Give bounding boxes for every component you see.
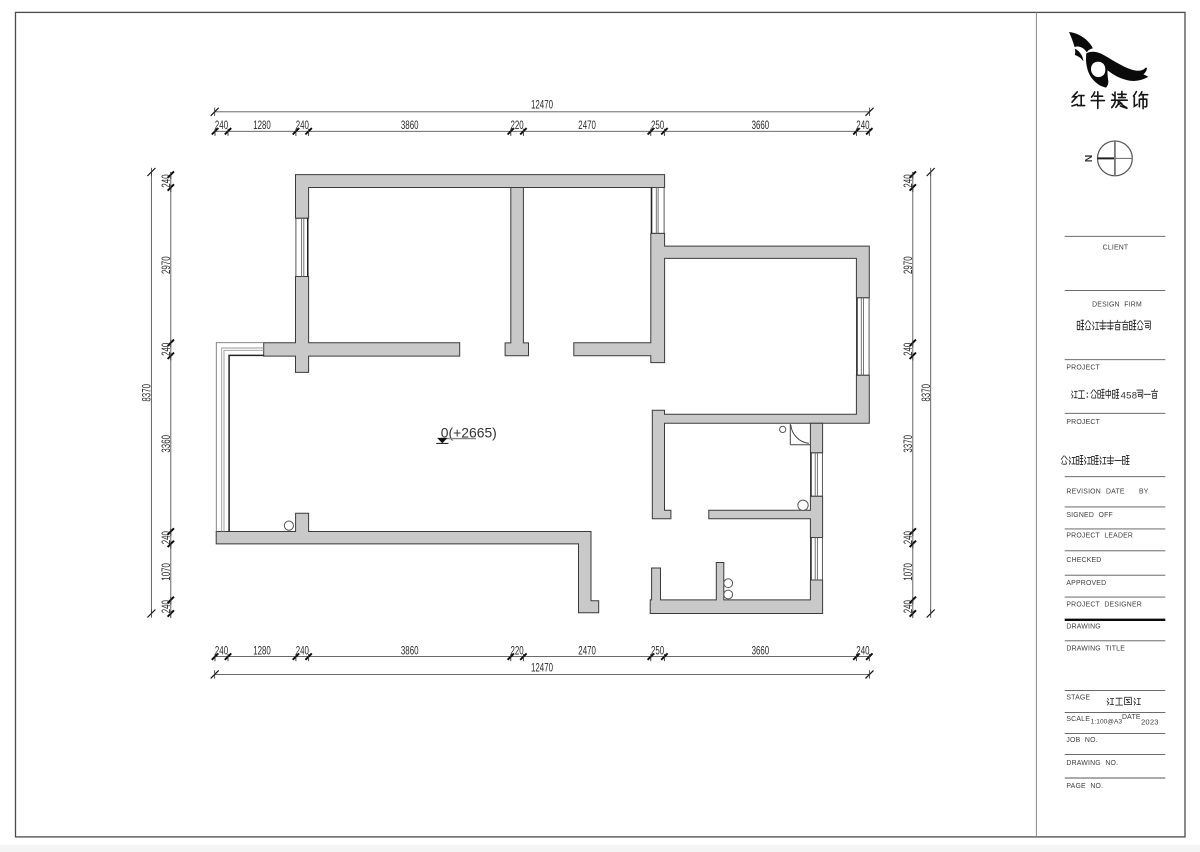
svg-text:240: 240 [856, 118, 869, 132]
svg-text:DRAWING: DRAWING [1066, 624, 1100, 631]
svg-text:2023: 2023 [1141, 717, 1159, 726]
svg-text:STAGE: STAGE [1066, 694, 1090, 701]
svg-text:240: 240 [296, 118, 309, 132]
svg-text:SCALE: SCALE [1066, 716, 1090, 723]
svg-text:240: 240 [296, 643, 309, 657]
svg-text:1070: 1070 [159, 563, 173, 581]
svg-text:CHECKED: CHECKED [1066, 557, 1101, 564]
svg-text:PROJECT DESIGNER: PROJECT DESIGNER [1066, 602, 1142, 609]
svg-text:2970: 2970 [901, 256, 915, 274]
svg-text:250: 250 [651, 643, 664, 657]
svg-text:1070: 1070 [901, 563, 915, 581]
svg-text:12470: 12470 [531, 661, 553, 675]
svg-text:220: 220 [511, 118, 524, 132]
svg-text:DRAWING NO.: DRAWING NO. [1066, 760, 1118, 767]
svg-text:240: 240 [159, 342, 173, 355]
svg-text:12470: 12470 [531, 97, 553, 111]
svg-text:250: 250 [651, 118, 664, 132]
svg-text:3860: 3860 [401, 118, 419, 132]
svg-text:PROJECT: PROJECT [1066, 419, 1100, 426]
svg-text:458: 458 [1121, 390, 1138, 401]
svg-text:3370: 3370 [901, 435, 915, 453]
svg-text:2470: 2470 [578, 118, 596, 132]
svg-text:240: 240 [901, 342, 915, 355]
svg-text:PAGE NO.: PAGE NO. [1066, 783, 1103, 790]
svg-text:PROJECT: PROJECT [1066, 365, 1100, 372]
svg-text:2970: 2970 [159, 256, 173, 274]
svg-text:240: 240 [215, 118, 228, 132]
svg-text:PROJECT LEADER: PROJECT LEADER [1066, 533, 1133, 540]
svg-text:APPROVED: APPROVED [1066, 580, 1106, 587]
svg-text:DRAWING TITLE: DRAWING TITLE [1066, 645, 1125, 652]
svg-text:DATE: DATE [1122, 714, 1141, 721]
svg-text:CLIENT: CLIENT [1103, 244, 1129, 251]
svg-text:3660: 3660 [752, 118, 770, 132]
svg-text:1280: 1280 [253, 643, 271, 657]
svg-text:240: 240 [901, 531, 915, 544]
svg-text:240: 240 [159, 600, 173, 613]
svg-text:240: 240 [159, 531, 173, 544]
svg-text:240: 240 [159, 174, 173, 187]
svg-text:240: 240 [901, 600, 915, 613]
svg-text:BY: BY [1139, 488, 1149, 495]
svg-text:DESIGN FIRM: DESIGN FIRM [1092, 302, 1142, 309]
svg-text:1280: 1280 [253, 118, 271, 132]
svg-text:2470: 2470 [578, 643, 596, 657]
svg-text:240: 240 [215, 643, 228, 657]
svg-text:JOB NO.: JOB NO. [1066, 737, 1097, 744]
svg-text:REVISION: REVISION [1066, 488, 1101, 495]
svg-text:220: 220 [511, 643, 524, 657]
svg-text:3860: 3860 [401, 643, 419, 657]
svg-text:N: N [1083, 155, 1095, 163]
svg-text:240: 240 [856, 643, 869, 657]
svg-text:3360: 3360 [159, 435, 173, 453]
svg-text:3660: 3660 [752, 643, 770, 657]
svg-text:8370: 8370 [919, 384, 933, 402]
svg-text:1:100@A3: 1:100@A3 [1091, 718, 1123, 725]
svg-text:SIGNED OFF: SIGNED OFF [1066, 512, 1113, 519]
svg-text:DATE: DATE [1106, 488, 1125, 495]
svg-text:240: 240 [901, 174, 915, 187]
svg-text:8370: 8370 [139, 384, 153, 402]
